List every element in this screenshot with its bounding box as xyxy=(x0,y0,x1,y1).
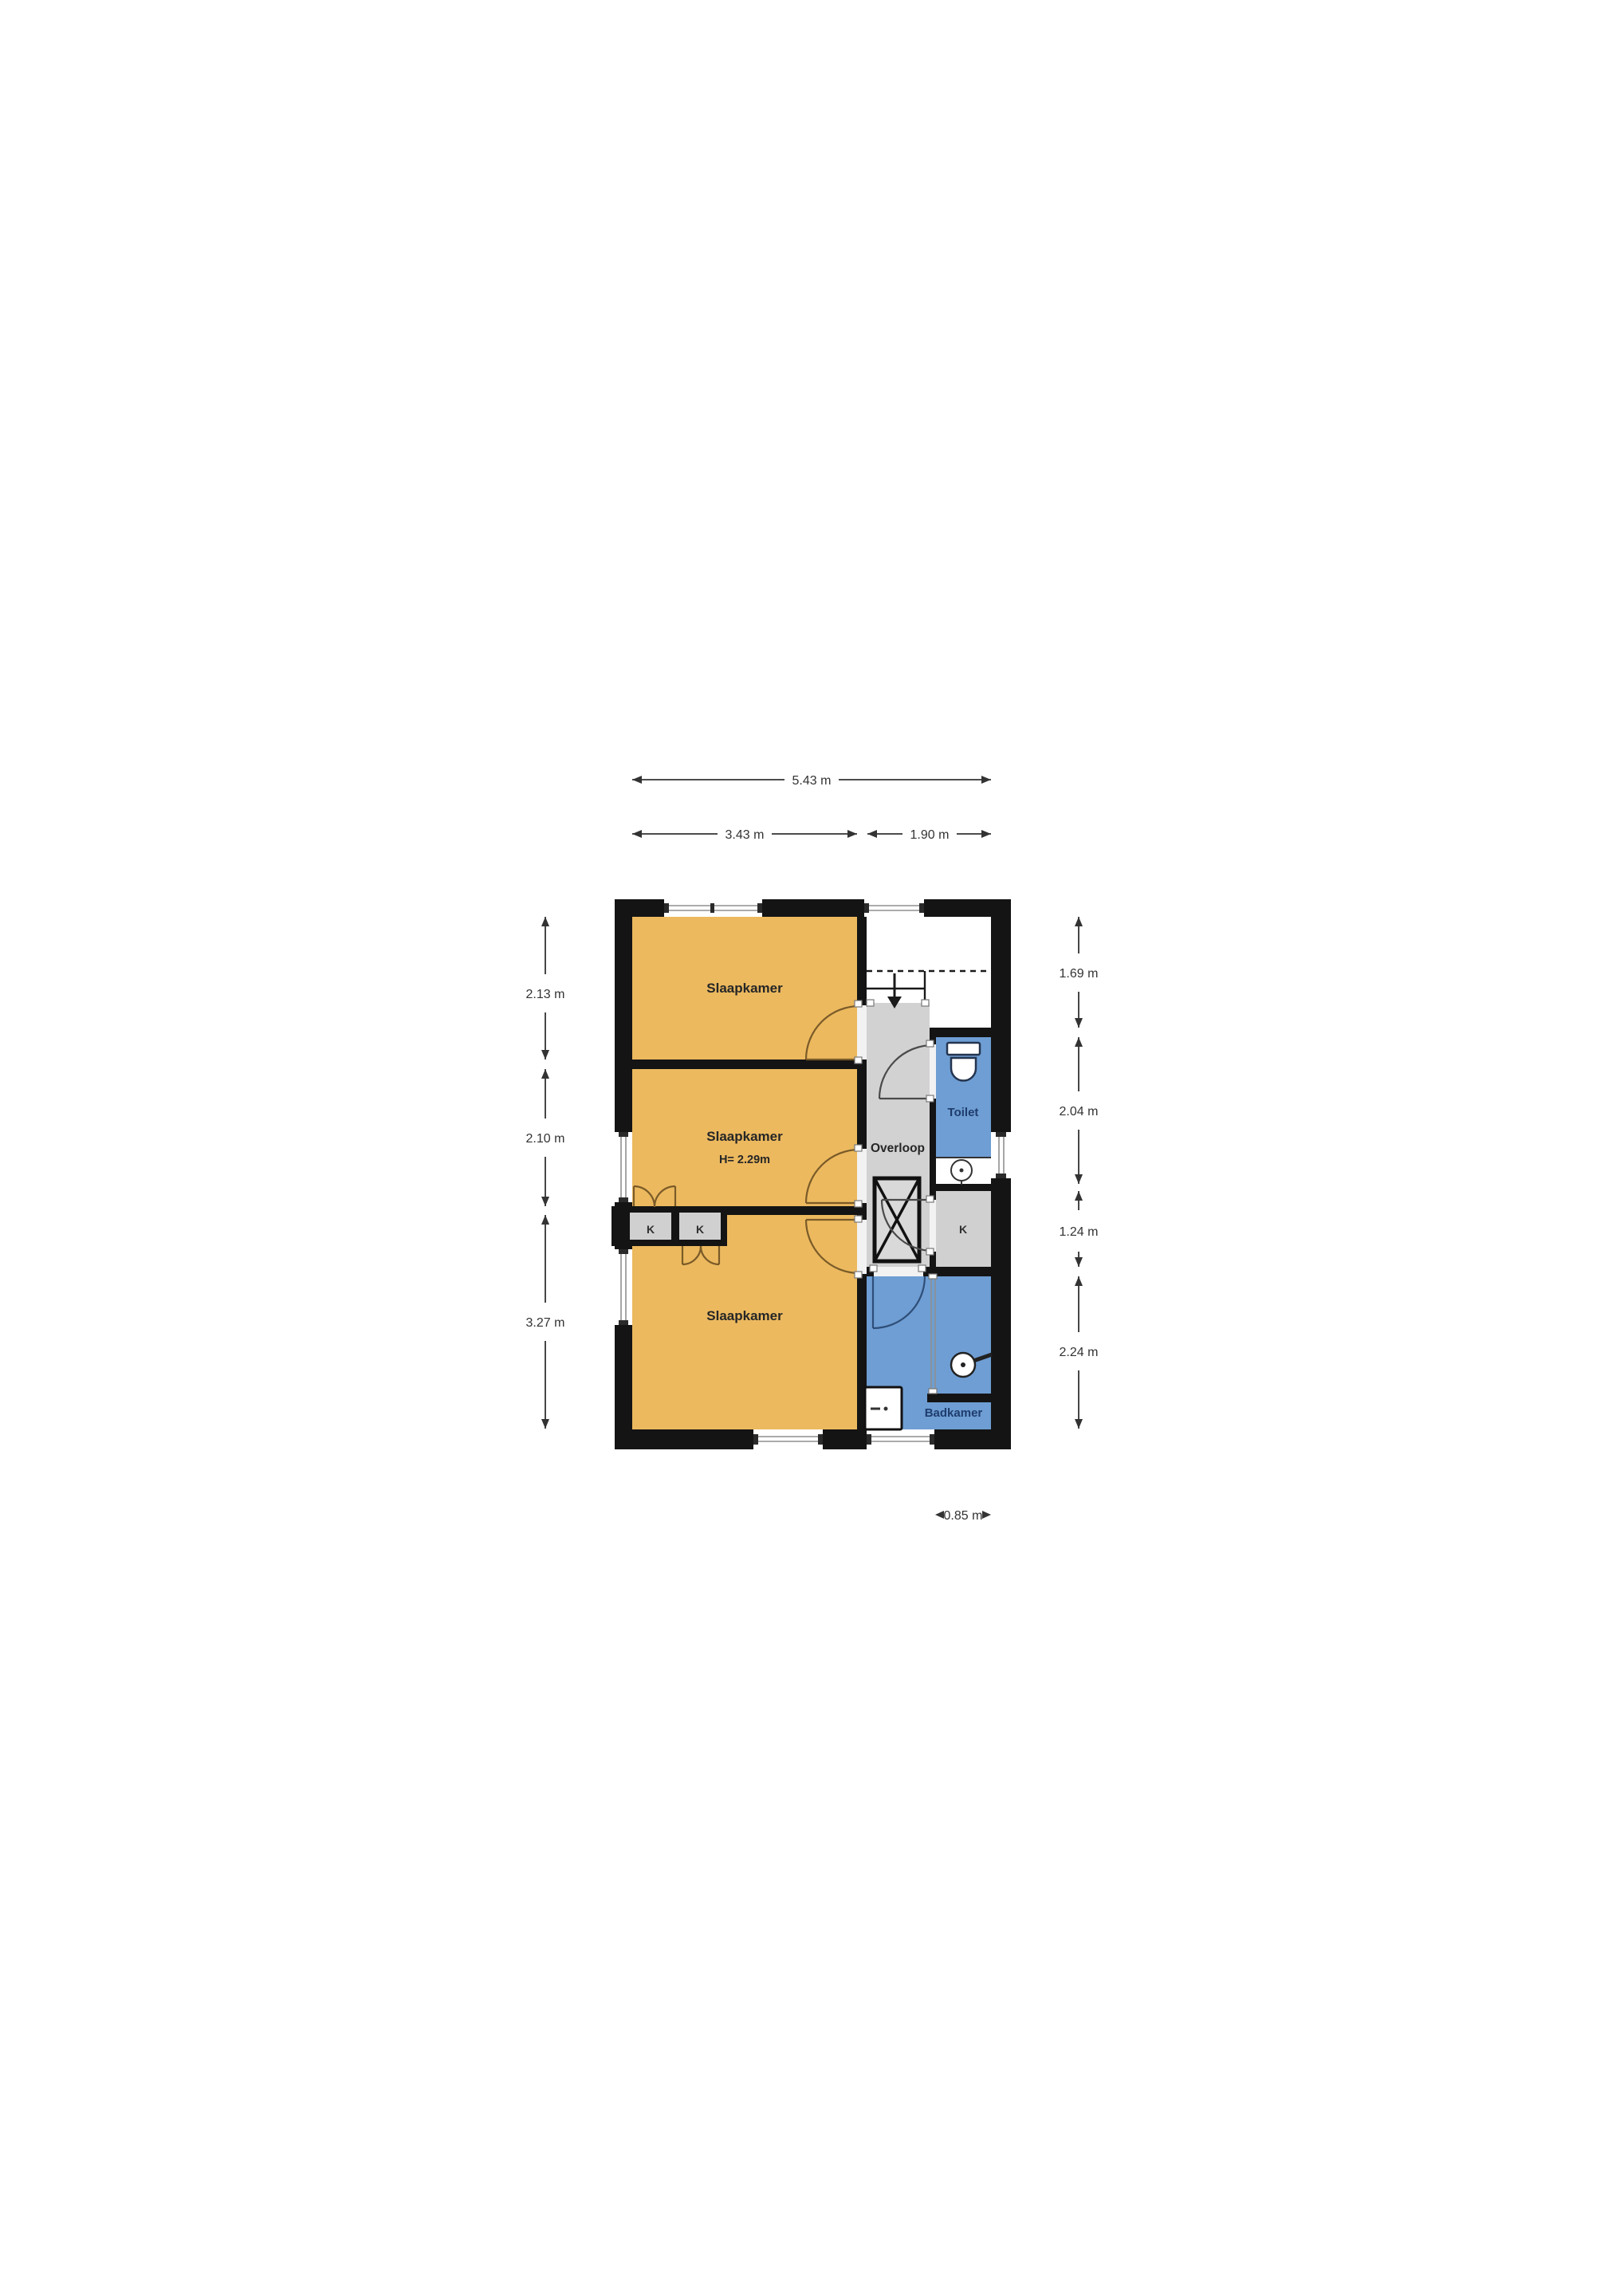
door-gap-bathroom xyxy=(874,1267,923,1276)
washbasin-icon xyxy=(865,1387,902,1429)
dim-right-3: 1.24 m xyxy=(1060,1225,1099,1239)
window-bottom-bathroom xyxy=(867,1429,934,1449)
window-right-toilet xyxy=(991,1132,1011,1178)
door-gap-bedroom-bottom xyxy=(857,1220,867,1274)
dim-top-total: 5.43 m xyxy=(792,774,832,788)
wall-toilet-closet xyxy=(930,1184,991,1191)
closet-left-label: K xyxy=(647,1223,655,1236)
dim-top-right: 1.90 m xyxy=(910,828,950,842)
door-gap-closet-right xyxy=(930,1200,936,1252)
dim-top-left: 3.43 m xyxy=(725,828,765,842)
door-gap-bedroom-top xyxy=(857,1005,867,1060)
bedroom-middle-label: Slaapkamer xyxy=(706,1129,783,1144)
dim-left-3: 3.27 m xyxy=(526,1316,565,1330)
toilet-label: Toilet xyxy=(948,1106,979,1119)
bedroom-top-label: Slaapkamer xyxy=(706,981,783,996)
closet-right-label: K xyxy=(959,1223,967,1236)
bathroom-label: Badkamer xyxy=(925,1406,983,1420)
closet-middle-label: K xyxy=(696,1223,704,1236)
dim-right-4: 2.24 m xyxy=(1060,1346,1099,1359)
door-gap-toilet xyxy=(930,1044,936,1099)
bedroom-middle-height-note: H= 2.29m xyxy=(719,1154,770,1166)
window-bottom-bedroom xyxy=(753,1429,823,1449)
room-floors xyxy=(632,917,991,1429)
floorplan-canvas: 5.43 m 3.43 m 1.90 m 2.13 m 2.10 m 3.27 … xyxy=(0,0,1624,2296)
window-top-bedroom xyxy=(664,899,762,917)
dim-right-2: 2.04 m xyxy=(1060,1105,1099,1119)
stairwell-void-x-icon xyxy=(875,1178,919,1261)
landing-label: Overloop xyxy=(871,1142,925,1155)
wall-shower-stub xyxy=(927,1394,991,1402)
floorplan-page: 5.43 m 3.43 m 1.90 m 2.13 m 2.10 m 3.27 … xyxy=(0,0,1624,2296)
door-gap-bedroom-middle xyxy=(857,1149,867,1203)
window-left-bedroom-bottom xyxy=(615,1249,632,1325)
window-top-stairwell xyxy=(864,899,924,917)
dim-left-1: 2.13 m xyxy=(526,988,565,1001)
wall-bedroom2-bedroom3 xyxy=(724,1206,857,1215)
dim-bottom: 0.85 m xyxy=(944,1509,983,1523)
wall-toilet-top xyxy=(930,1028,991,1037)
window-left-bedroom-middle xyxy=(615,1132,632,1202)
wall-bedroom1-bedroom2 xyxy=(632,1060,857,1069)
toilet-icon xyxy=(947,1043,980,1080)
dim-right-1: 1.69 m xyxy=(1060,967,1099,981)
bedroom-bottom-label: Slaapkamer xyxy=(706,1308,783,1323)
dim-left-2: 2.10 m xyxy=(526,1132,565,1146)
